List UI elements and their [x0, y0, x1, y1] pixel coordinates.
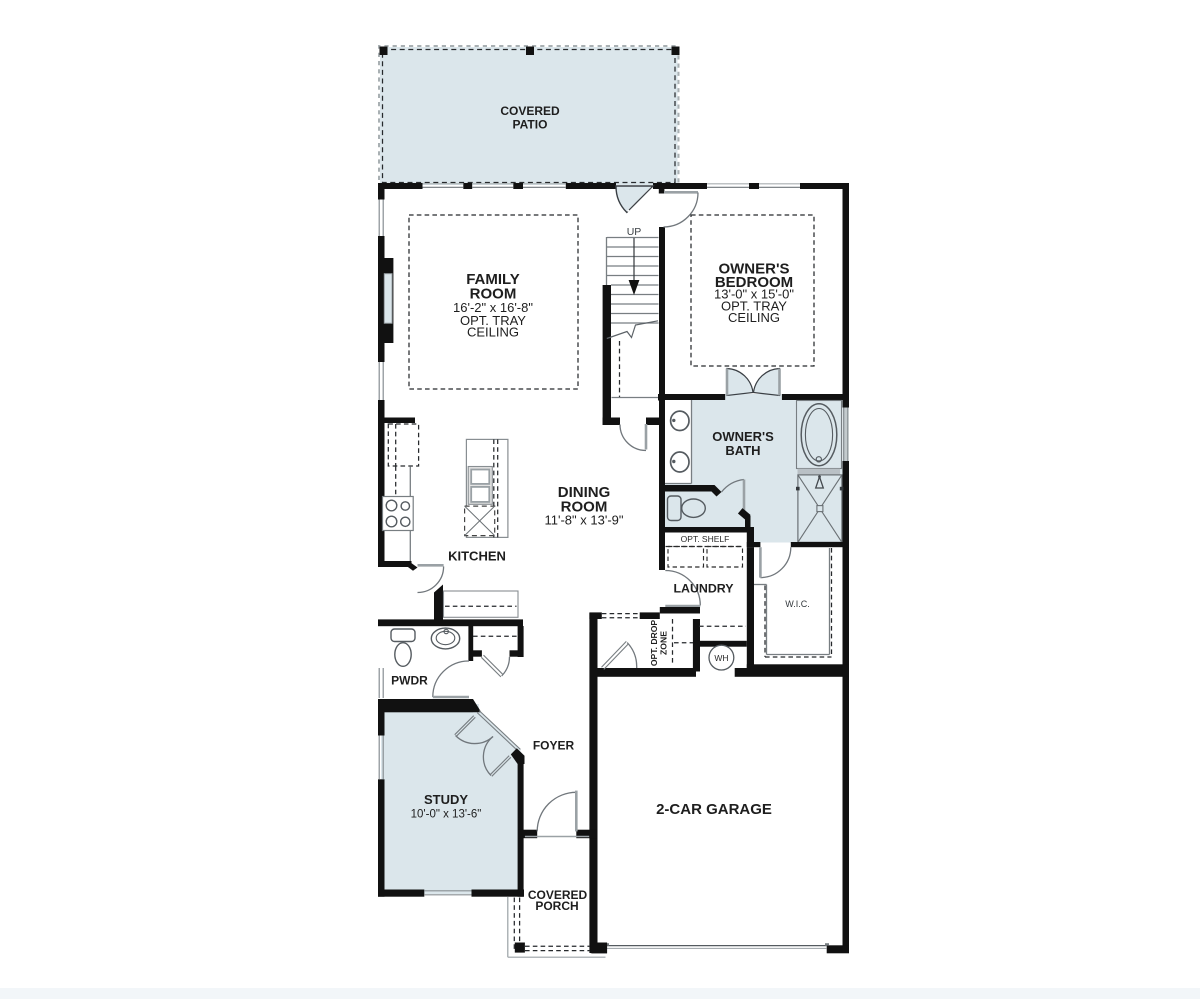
svg-text:W.I.C.: W.I.C.	[785, 599, 810, 609]
svg-text:WH: WH	[714, 653, 728, 663]
svg-text:OWNER'S: OWNER'S	[712, 429, 774, 444]
svg-text:OPT. SHELF: OPT. SHELF	[681, 534, 730, 544]
svg-text:2-CAR GARAGE: 2-CAR GARAGE	[656, 801, 772, 818]
svg-text:COVERED: COVERED	[500, 104, 560, 118]
svg-text:11'-8" x 13'-9": 11'-8" x 13'-9"	[545, 513, 624, 528]
svg-text:10'-0" x 13'-6": 10'-0" x 13'-6"	[411, 809, 482, 821]
svg-text:PORCH: PORCH	[535, 899, 578, 913]
svg-text:PATIO: PATIO	[513, 118, 548, 132]
svg-text:STUDY: STUDY	[424, 792, 468, 807]
svg-text:KITCHEN: KITCHEN	[448, 549, 506, 564]
svg-text:CEILING: CEILING	[467, 325, 519, 340]
svg-text:BATH: BATH	[725, 443, 760, 458]
svg-text:ZONE: ZONE	[659, 631, 669, 655]
svg-text:LAUNDRY: LAUNDRY	[673, 582, 734, 596]
svg-text:PWDR: PWDR	[391, 674, 428, 688]
svg-text:CEILING: CEILING	[728, 310, 780, 325]
svg-text:OPT. DROP: OPT. DROP	[649, 620, 659, 667]
svg-text:UP: UP	[627, 226, 642, 238]
svg-text:FOYER: FOYER	[533, 739, 575, 753]
